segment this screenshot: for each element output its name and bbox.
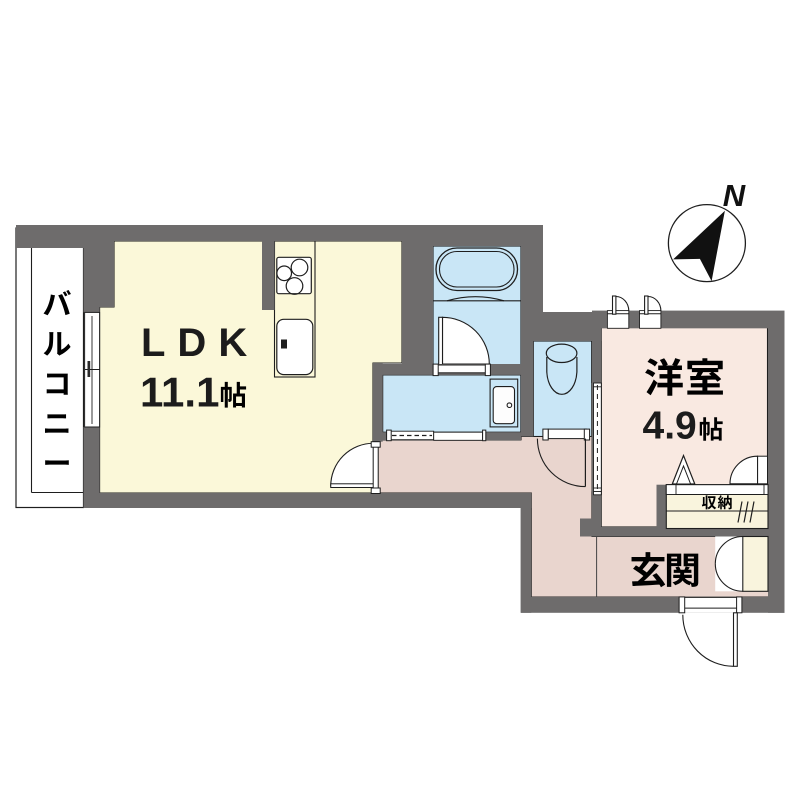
svg-text:N: N <box>723 178 746 213</box>
svg-text:4.9: 4.9 <box>643 405 697 448</box>
svg-text:LDK: LDK <box>141 321 259 365</box>
svg-text:11.1: 11.1 <box>140 369 219 416</box>
